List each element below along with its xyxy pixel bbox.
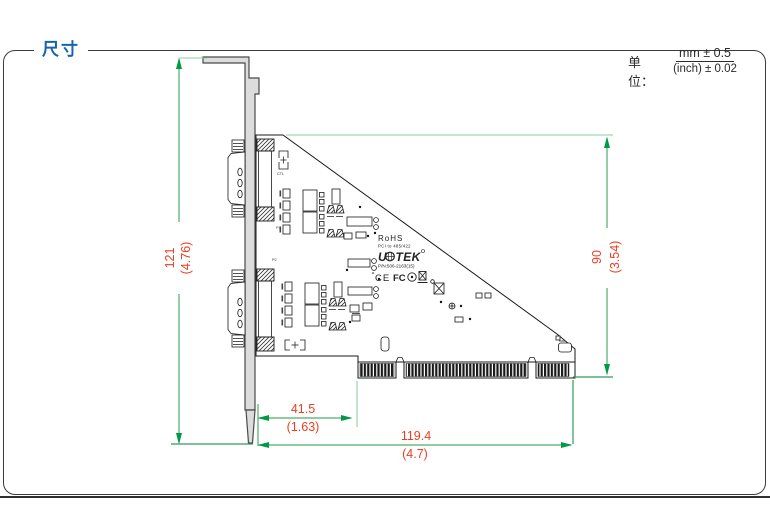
page-title: 尺寸 [34,39,88,61]
ce-mark: CE [375,273,390,284]
dim-text-1194: 119.4 [401,429,431,443]
pci-bracket [203,57,259,443]
part-number-label: P/N:506-2163(15) [378,264,415,269]
dim-bracket-height: 121 (4.76) [163,58,253,445]
model-label: PCI to 485/422 [378,244,411,249]
dim-text-47: (4.7) [402,447,428,461]
bracket-bottom-tab [246,410,255,443]
dim-text-90: 90 [590,250,604,264]
dim-text-354: (3.54) [608,241,622,274]
unit-fraction: mm ± 0.5 (inch) ± 0.02 [670,44,740,75]
capacitor [381,337,389,351]
connector-label-p2: P2 [272,258,277,262]
ic-chip [348,259,370,267]
dim-text-476: (4.76) [179,242,193,275]
uotek-logo: U TEK [378,250,425,265]
component-ctl-label: CTL [277,172,284,176]
fcc-mark: FC [393,273,406,284]
ic-chip [348,287,372,295]
rohs-label: RoHS [378,234,403,243]
dim-text-163: (1.63) [287,420,320,434]
corner-component [559,343,572,352]
dim-text-415: 41.5 [291,402,315,416]
dimension-drawing: P1 P2 CTL [0,0,770,507]
dim-text-121: 121 [163,248,177,269]
cert-marks: CE FC [372,272,427,285]
unit-mm-tolerance: mm ± 0.5 [676,46,734,62]
svg-text:TEK: TEK [396,250,422,264]
unit-inch-tolerance: (inch) ± 0.02 [670,62,740,75]
dim-connector-offset: 41.5 (1.63) [258,381,358,446]
ic-chip [347,217,372,226]
unit-label: 单位： [628,52,654,90]
